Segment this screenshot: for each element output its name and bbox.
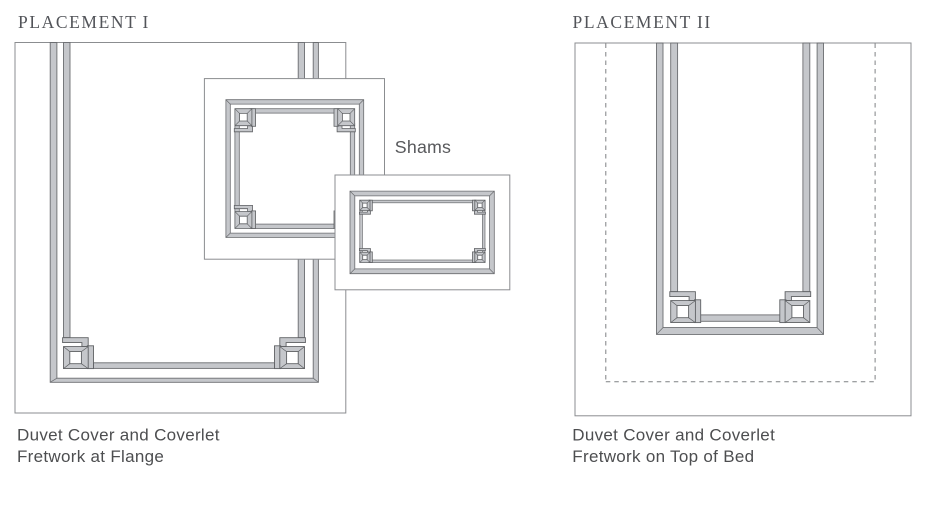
svg-text:Duvet Cover and Coverlet: Duvet Cover and Coverlet — [17, 426, 220, 445]
svg-text:Fretwork at Flange: Fretwork at Flange — [17, 447, 164, 466]
svg-text:Duvet Cover and Coverlet: Duvet Cover and Coverlet — [572, 426, 775, 445]
svg-text:Fretwork on Top of Bed: Fretwork on Top of Bed — [572, 447, 754, 466]
svg-text:PLACEMENT I: PLACEMENT I — [18, 12, 150, 32]
svg-text:PLACEMENT II: PLACEMENT II — [573, 12, 712, 32]
svg-text:Shams: Shams — [395, 137, 451, 157]
